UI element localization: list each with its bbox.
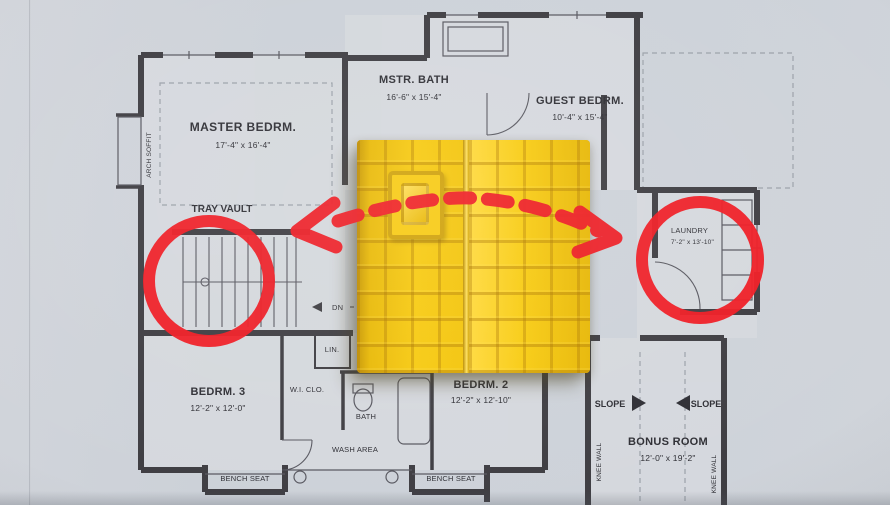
toy-house-ridge xyxy=(463,140,469,373)
room-label-laundry: LAUNDRY xyxy=(671,226,708,235)
linen-closet-label: LIN. xyxy=(325,345,340,354)
room-dims-master-bath: 16'-6" x 15'-4" xyxy=(386,92,441,102)
room-dims-bonus-room: 12'-0" x 19'-2" xyxy=(640,453,695,463)
bath-label: BATH xyxy=(356,412,376,421)
room-label-bonus-room: BONUS ROOM xyxy=(628,436,708,448)
arch-soffit-label: ARCH SOFFIT xyxy=(146,132,153,178)
slope-right-label: SLOPE xyxy=(691,399,722,409)
slope-left-label: SLOPE xyxy=(595,399,626,409)
room-dims-laundry: 7'-2" x 13'-10" xyxy=(671,239,714,246)
toy-house-roof-right xyxy=(469,140,590,373)
tray-vault-label: TRAY VAULT xyxy=(192,204,253,215)
wi-closet-label: W.I. CLO. xyxy=(290,385,324,394)
photo-bottom-shadow xyxy=(0,491,890,505)
room-label-bedroom-2: BEDRM. 2 xyxy=(454,379,509,391)
wash-area-label: WASH AREA xyxy=(332,445,378,454)
dn-label: DN xyxy=(332,303,343,312)
room-label-master-bath: MSTR. BATH xyxy=(379,74,449,86)
toy-house-chimney-opening xyxy=(401,183,429,225)
knee-wall-right-label: KNEE WALL xyxy=(711,454,718,493)
bench-seat-right-label: BENCH SEAT xyxy=(426,474,476,483)
room-dims-master-bedroom: 17'-4" x 16'-4" xyxy=(215,140,270,150)
toy-house-marker xyxy=(357,140,590,373)
room-label-guest-bedroom: GUEST BEDRM. xyxy=(536,95,624,107)
room-label-master-bedroom: MASTER BEDRM. xyxy=(190,120,297,134)
room-label-bedroom-3: BEDRM. 3 xyxy=(191,386,246,398)
toy-house-chimney xyxy=(388,171,444,239)
knee-wall-left-label: KNEE WALL xyxy=(596,442,603,481)
room-dims-guest-bedroom: 10'-4" x 15'-4" xyxy=(552,112,607,122)
floor-plan-photo: MASTER BEDRM. 17'-4" x 16'-4" MSTR. BATH… xyxy=(0,0,890,505)
bench-seat-left-label: BENCH SEAT xyxy=(220,474,270,483)
room-dims-bedroom-3: 12'-2" x 12'-0" xyxy=(190,403,245,413)
room-dims-bedroom-2: 12'-2" x 12'-10" xyxy=(451,395,511,405)
